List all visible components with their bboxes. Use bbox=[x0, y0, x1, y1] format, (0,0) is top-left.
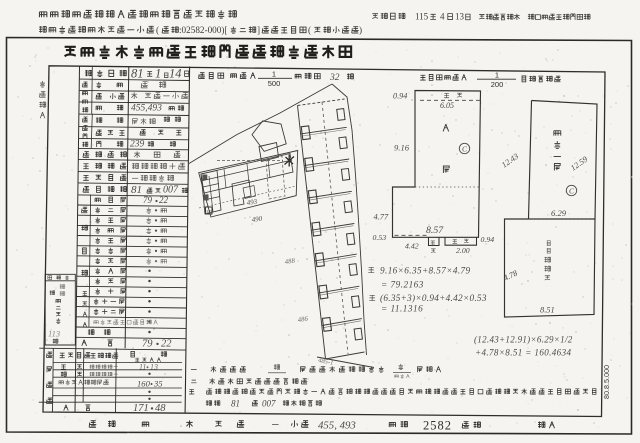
svg-text:(: ( bbox=[308, 25, 311, 35]
svg-text:14: 14 bbox=[169, 67, 182, 81]
svg-text:6.05: 6.05 bbox=[440, 101, 454, 110]
svg-text:115: 115 bbox=[415, 12, 429, 22]
svg-text:(: ( bbox=[156, 25, 159, 35]
svg-text:22: 22 bbox=[161, 339, 172, 350]
svg-text:007: 007 bbox=[262, 399, 276, 409]
svg-text:113: 113 bbox=[48, 329, 60, 339]
svg-text:486: 486 bbox=[297, 316, 309, 324]
svg-text:8.51: 8.51 bbox=[540, 306, 555, 315]
svg-text:+4.78×8.51 = 160.4634: +4.78×8.51 = 160.4634 bbox=[475, 348, 571, 358]
svg-text:455,493: 455,493 bbox=[131, 104, 162, 114]
svg-text:]: ] bbox=[257, 25, 260, 35]
svg-text:200: 200 bbox=[491, 80, 504, 89]
svg-text:007: 007 bbox=[163, 185, 179, 196]
svg-text:): ) bbox=[359, 25, 362, 35]
svg-text:493: 493 bbox=[246, 198, 258, 207]
svg-text:0.53: 0.53 bbox=[373, 233, 387, 242]
svg-text:80.8.5.000: 80.8.5.000 bbox=[602, 365, 611, 399]
svg-text:2582: 2582 bbox=[423, 419, 452, 433]
svg-text:2.00: 2.00 bbox=[456, 246, 470, 255]
svg-text:9.16: 9.16 bbox=[394, 143, 410, 153]
svg-text:9.16×6.35+8.57×4.79: 9.16×6.35+8.57×4.79 bbox=[380, 266, 471, 276]
svg-text:6.29: 6.29 bbox=[551, 208, 567, 218]
svg-text:32: 32 bbox=[329, 73, 340, 83]
svg-text:239: 239 bbox=[130, 140, 145, 150]
svg-text:0.94: 0.94 bbox=[393, 92, 407, 101]
svg-text:4.77: 4.77 bbox=[374, 213, 389, 222]
svg-text:160: 160 bbox=[137, 378, 151, 388]
svg-text:79: 79 bbox=[143, 195, 153, 205]
svg-text:171: 171 bbox=[133, 403, 149, 414]
svg-text:488: 488 bbox=[284, 258, 296, 266]
svg-text:349: 349 bbox=[206, 209, 214, 214]
svg-text:35: 35 bbox=[153, 378, 163, 388]
svg-text:= 11.1316: = 11.1316 bbox=[381, 304, 423, 314]
svg-text:11: 11 bbox=[139, 362, 146, 371]
svg-text:(12.43+12.91)×6.29×1/2: (12.43+12.91)×6.29×1/2 bbox=[474, 335, 573, 345]
svg-text:1: 1 bbox=[495, 71, 499, 80]
svg-text:1: 1 bbox=[272, 70, 276, 79]
svg-text:81: 81 bbox=[131, 67, 144, 81]
svg-text:79: 79 bbox=[142, 339, 153, 350]
svg-text:4: 4 bbox=[440, 12, 445, 22]
svg-text:455, 493: 455, 493 bbox=[318, 420, 356, 432]
svg-text:22: 22 bbox=[159, 195, 169, 205]
svg-text:500: 500 bbox=[268, 79, 281, 88]
svg-text:1: 1 bbox=[155, 67, 161, 81]
svg-text:13: 13 bbox=[150, 362, 158, 371]
svg-text:81: 81 bbox=[231, 399, 240, 409]
svg-text:4.42: 4.42 bbox=[405, 242, 419, 251]
svg-text:0.94: 0.94 bbox=[481, 235, 495, 244]
svg-text:= 79.2163: = 79.2163 bbox=[381, 280, 424, 290]
svg-text::02582-000)[: :02582-000)[ bbox=[179, 25, 227, 35]
svg-text:(6.35+3)×0.94+4.42×0.53: (6.35+3)×0.94+4.42×0.53 bbox=[380, 293, 487, 303]
svg-text:13: 13 bbox=[455, 12, 465, 22]
svg-text:490: 490 bbox=[251, 215, 263, 224]
svg-text:48: 48 bbox=[155, 403, 166, 414]
svg-text:8.57: 8.57 bbox=[426, 225, 444, 236]
svg-text:81: 81 bbox=[131, 184, 142, 196]
